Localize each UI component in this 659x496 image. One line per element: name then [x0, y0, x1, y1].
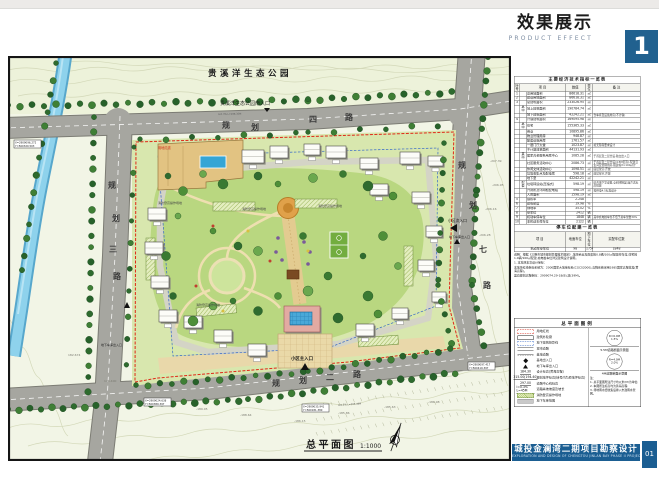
fire-lane-label: 消防登高操作场地: [158, 200, 182, 205]
spot-elevation: -186.98: [428, 400, 440, 404]
legend-notes: 注：1. 总平面图所注尺寸均以米(M)为单位;2. 本图所注标高均为黄海高程;3…: [590, 377, 639, 396]
legend-box: 总平面图例 用地红线建筑外轮廓地下建筑投影线城市道路基地道路基地出入口地下车库出…: [514, 318, 641, 407]
legend-panel: 总平面图例 用地红线建筑外轮廓地下建筑投影线城市道路基地道路基地出入口地下车库出…: [514, 318, 640, 496]
svg-text:Y=560419.397: Y=560419.397: [469, 366, 489, 370]
legend-item: 215.00(194.40)规划地坪标高(括号内为原地坪标高): [517, 376, 588, 381]
clubhouse: [284, 306, 322, 334]
title-block-banner: 城投金澜湾二期项目勘察设计 EXPLORATION AND DESIGN OF …: [512, 444, 640, 461]
legend-symbol-cityroad-icon: [518, 347, 534, 351]
legend-symbol-outline-icon: [518, 335, 534, 340]
plan-scale-value: 1:1000: [360, 443, 381, 450]
road-name-char: 划: [251, 122, 259, 132]
svg-text:Y=560389.397: Y=560389.397: [145, 402, 165, 406]
legend-item: 城市道路: [517, 347, 588, 352]
table-row: 其中地上建筑面积190784.74㎡: [514, 105, 640, 113]
svg-text:Y=560181.380: Y=560181.380: [303, 408, 323, 412]
road-name-char: 规: [108, 180, 116, 190]
road-name-char: 规: [458, 160, 466, 170]
chapter-number-badge: 1: [625, 30, 658, 63]
legend-symbol-garage-icon: [523, 365, 528, 369]
sheet-number-badge: 01: [642, 441, 657, 468]
road-section-diagram: R=6.0M1.5%: [607, 330, 623, 346]
spot-elevation: -188.64: [240, 413, 252, 417]
svg-text:X=2909024.638: X=2909024.638: [145, 398, 167, 402]
spot-elevation: 182.674: [68, 353, 80, 357]
economic-indicators-table: 主要经济技术指标一览表序号项 目数值单位备 注1总用地面积86618.31㎡2建…: [514, 76, 641, 252]
table-row: 机动车停车位9817501848: [514, 247, 640, 251]
legend-symbol-uga-icon: [518, 399, 534, 404]
legend-item: 184.30设计标高(黄海高程): [517, 370, 588, 375]
legend-title: 总平面图例: [515, 319, 641, 329]
road-name-char: 路: [483, 280, 492, 290]
road-name-char: 划: [299, 375, 307, 385]
fire-lane-label: 消防登高操作场地: [242, 206, 266, 211]
spot-elevation: -189.05: [196, 407, 208, 411]
legend-symbol-siteroad-icon: [518, 354, 534, 356]
legend-symbol-ugline-icon: [518, 341, 534, 346]
svg-text:X=2909097.417: X=2909097.417: [469, 362, 491, 366]
table-row: 项 目地面车位地下车位实配车位数: [514, 232, 640, 248]
legend-item: 基地出入口: [517, 358, 588, 363]
spot-elevation: -206.16: [485, 207, 497, 211]
table-row: 其中居家养老服务用房中心1085.28㎡于首层及二层合设,独立出入口: [514, 152, 640, 160]
road-name-char: 划: [469, 200, 477, 210]
note-line: 1. 本地块本次设计坐标：: [514, 262, 640, 266]
spot-elevation: -185.63: [384, 405, 396, 409]
window-top-strip: [0, 0, 659, 9]
table-notes: 说明：根据《三明市城市规划管理技术规定》,地块商业及配套按0.8辆/100㎡配建…: [514, 253, 640, 278]
table-row: 配套垃圾转运站(压缩式)598.19㎡结合地下室设置,全封闭除臭,噪声达标后排放: [514, 181, 640, 189]
garage-entrance-label-right: 地下车库出入口: [449, 234, 470, 239]
spot-elevation: 176.400: [104, 379, 116, 383]
note-line: 本地块红线坐标系统为：2000国家大地坐标系(CGCS2000),高程系统采用1…: [514, 266, 640, 273]
road-name-char: 三: [109, 245, 117, 254]
road-section-diagram: R=4.0M2.0%: [607, 354, 623, 370]
main-entrance-label: 小区主入口: [291, 355, 313, 362]
park-name-label: 贵溪洋生态公园: [208, 68, 292, 79]
spot-elevation: -185.86: [338, 411, 350, 415]
park-entrance-label: 贵溪洋生态公园南入口: [220, 100, 270, 107]
page-subtitle: PRODUCT EFFECT: [509, 35, 593, 42]
svg-text:X=2909096.272: X=2909096.272: [15, 140, 37, 144]
road-name-char: 四: [309, 115, 317, 124]
svg-text:X=2909035.941: X=2909035.941: [303, 404, 325, 408]
legend-item: i=0.3% L=45M道路纵坡坡度及坡长: [517, 387, 588, 392]
spot-elevation: -206.28: [479, 233, 491, 237]
svg-text:Y=560320.503: Y=560320.503: [15, 144, 35, 148]
page-title: 效果展示: [509, 14, 593, 33]
legend-item: 地下建筑投影线: [517, 341, 588, 346]
main-entrance-plaza: [278, 334, 332, 368]
legend-item: 地下车库范围: [517, 399, 588, 404]
legend-item: 用地红线: [517, 330, 588, 335]
legend-symbol-redline-icon: [518, 330, 534, 335]
table-row: 主要经济技术指标一览表: [514, 76, 640, 83]
road-name-char: 路: [345, 112, 354, 122]
fire-lane-label: 消防登高操作场地: [318, 203, 342, 208]
project-name-cn: 城投金澜湾二期项目勘察设计: [512, 444, 640, 454]
drawing-sheet-page: { "header": { "title_cn": "效果展示", "title…: [0, 0, 659, 470]
note-line: 竖向规划高程坐标：2909074.29-18(B),双(39M)。: [514, 275, 640, 279]
road-grade-note: i=0.3% L=198.35M: [218, 113, 241, 116]
table-row: 序号项 目数值单位备 注: [514, 84, 640, 92]
spot-elevation: -206.95: [492, 183, 504, 187]
legend-symbol-entry-icon: [523, 358, 528, 363]
road-name-char: 划: [112, 213, 120, 223]
table-row: 其中住宅155365.33㎡: [514, 122, 640, 130]
legend-item: 地下车库出入口: [517, 364, 588, 369]
secondary-entrance-label: 小区次入口: [448, 218, 467, 223]
road-name-char: 规: [222, 120, 230, 130]
table-row: 停车位配建一览表: [514, 224, 640, 231]
legend-item: 消防登高操作场地: [517, 393, 588, 398]
site-plan-drawing: 规划四路规划三路规划七路规划二路消防登高操作场地消防登高操作场地消防登高操作场地…: [8, 56, 511, 461]
table-row: 社区服务活动中心2086.73㎡于首层及二层合设(4.5M层高),配建卫生间及管…: [514, 160, 640, 167]
garage-entrance-label-left: 地下车库出入口: [101, 342, 122, 347]
spot-elevation: -207.39: [490, 159, 502, 163]
legend-symbol-firelane-icon: [517, 393, 534, 398]
road-name-char: 路: [353, 369, 362, 379]
road-name-char: 二: [326, 373, 334, 382]
spot-elevation: -186.15: [294, 419, 306, 423]
sheet-header: 效果展示 PRODUCT EFFECT 1: [509, 14, 635, 42]
redline-label: 用地红线: [158, 145, 172, 150]
fire-lane-label: 消防登高操作场地: [196, 302, 220, 307]
road-name-char: 规: [272, 378, 280, 388]
project-name-en: EXPLORATION AND DESIGN OF CHENGTOU JINLA…: [512, 454, 640, 458]
road-name-char: 七: [479, 244, 487, 254]
note-line: 说明：根据《三明市城市规划管理技术规定》,地块商业及配套按0.8辆/100㎡配建…: [514, 253, 640, 260]
legend-item: 建筑外轮廓: [517, 335, 588, 340]
plan-title-label: 总平面图: [306, 438, 356, 451]
legend-item: 基地道路: [517, 353, 588, 358]
road-name-char: 路: [113, 271, 122, 281]
